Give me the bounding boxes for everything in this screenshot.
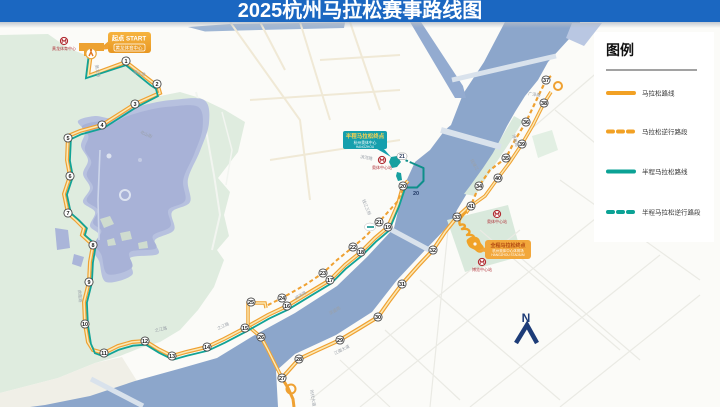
- svg-text:41: 41: [468, 204, 474, 210]
- svg-text:7: 7: [66, 211, 69, 217]
- svg-text:9: 9: [87, 280, 90, 286]
- svg-text:27: 27: [279, 376, 285, 382]
- svg-text:5: 5: [66, 136, 69, 142]
- svg-text:全程马拉松终点: 全程马拉松终点: [489, 242, 525, 249]
- svg-text:2: 2: [155, 82, 158, 88]
- svg-text:半程马拉松终点: 半程马拉松终点: [346, 132, 385, 140]
- svg-text:22: 22: [350, 245, 356, 251]
- svg-text:37: 37: [543, 78, 549, 84]
- svg-text:半程马拉松逆行路段: 半程马拉松逆行路段: [642, 208, 701, 217]
- svg-text:起点 START: 起点 START: [111, 35, 146, 43]
- svg-text:图例: 图例: [606, 42, 634, 58]
- svg-text:40: 40: [495, 176, 501, 182]
- svg-text:33: 33: [454, 215, 460, 221]
- svg-text:3: 3: [133, 102, 136, 108]
- svg-text:21: 21: [376, 220, 382, 226]
- svg-text:20: 20: [400, 184, 406, 190]
- svg-text:18: 18: [358, 250, 364, 256]
- svg-text:黄龙体育中心: 黄龙体育中心: [52, 45, 76, 51]
- svg-text:奥体中心站: 奥体中心站: [487, 218, 507, 224]
- svg-text:38: 38: [541, 101, 547, 107]
- svg-text:17: 17: [327, 278, 333, 284]
- svg-text:博览中心站: 博览中心站: [472, 266, 492, 272]
- svg-text:12: 12: [142, 339, 148, 345]
- svg-text:11: 11: [101, 351, 107, 357]
- svg-text:29: 29: [337, 338, 343, 344]
- svg-text:19: 19: [385, 225, 391, 231]
- svg-text:马拉松逆行路段: 马拉松逆行路段: [642, 127, 688, 136]
- svg-text:HANGZHOU: HANGZHOU: [356, 145, 375, 149]
- svg-text:30: 30: [375, 315, 381, 321]
- svg-text:半程马拉松路线: 半程马拉松路线: [642, 167, 688, 176]
- svg-text:1: 1: [124, 59, 127, 65]
- svg-text:16: 16: [284, 304, 290, 310]
- svg-text:13: 13: [169, 354, 175, 360]
- svg-text:15: 15: [242, 326, 248, 332]
- svg-text:21: 21: [399, 154, 405, 160]
- svg-text:20: 20: [413, 191, 419, 197]
- svg-text:2025杭州马拉松赛事路线图: 2025杭州马拉松赛事路线图: [238, 0, 483, 22]
- svg-text:黄龙体育中心: 黄龙体育中心: [116, 45, 143, 52]
- svg-text:31: 31: [399, 282, 405, 288]
- svg-text:24: 24: [279, 296, 286, 302]
- svg-text:34: 34: [476, 184, 483, 190]
- svg-text:6: 6: [68, 174, 71, 180]
- svg-text:26: 26: [258, 335, 264, 341]
- svg-text:马拉松路线: 马拉松路线: [642, 89, 675, 98]
- svg-text:35: 35: [503, 156, 509, 162]
- svg-text:36: 36: [523, 120, 529, 126]
- svg-text:10: 10: [82, 322, 88, 328]
- svg-text:HANGZHOU STADIUM: HANGZHOU STADIUM: [491, 253, 525, 257]
- svg-text:32: 32: [430, 248, 436, 254]
- svg-text:奥体中心站: 奥体中心站: [372, 164, 392, 170]
- svg-text:14: 14: [204, 345, 211, 351]
- svg-text:8: 8: [91, 243, 94, 249]
- svg-text:23: 23: [320, 271, 326, 277]
- svg-text:28: 28: [296, 357, 302, 363]
- svg-text:25: 25: [248, 300, 254, 306]
